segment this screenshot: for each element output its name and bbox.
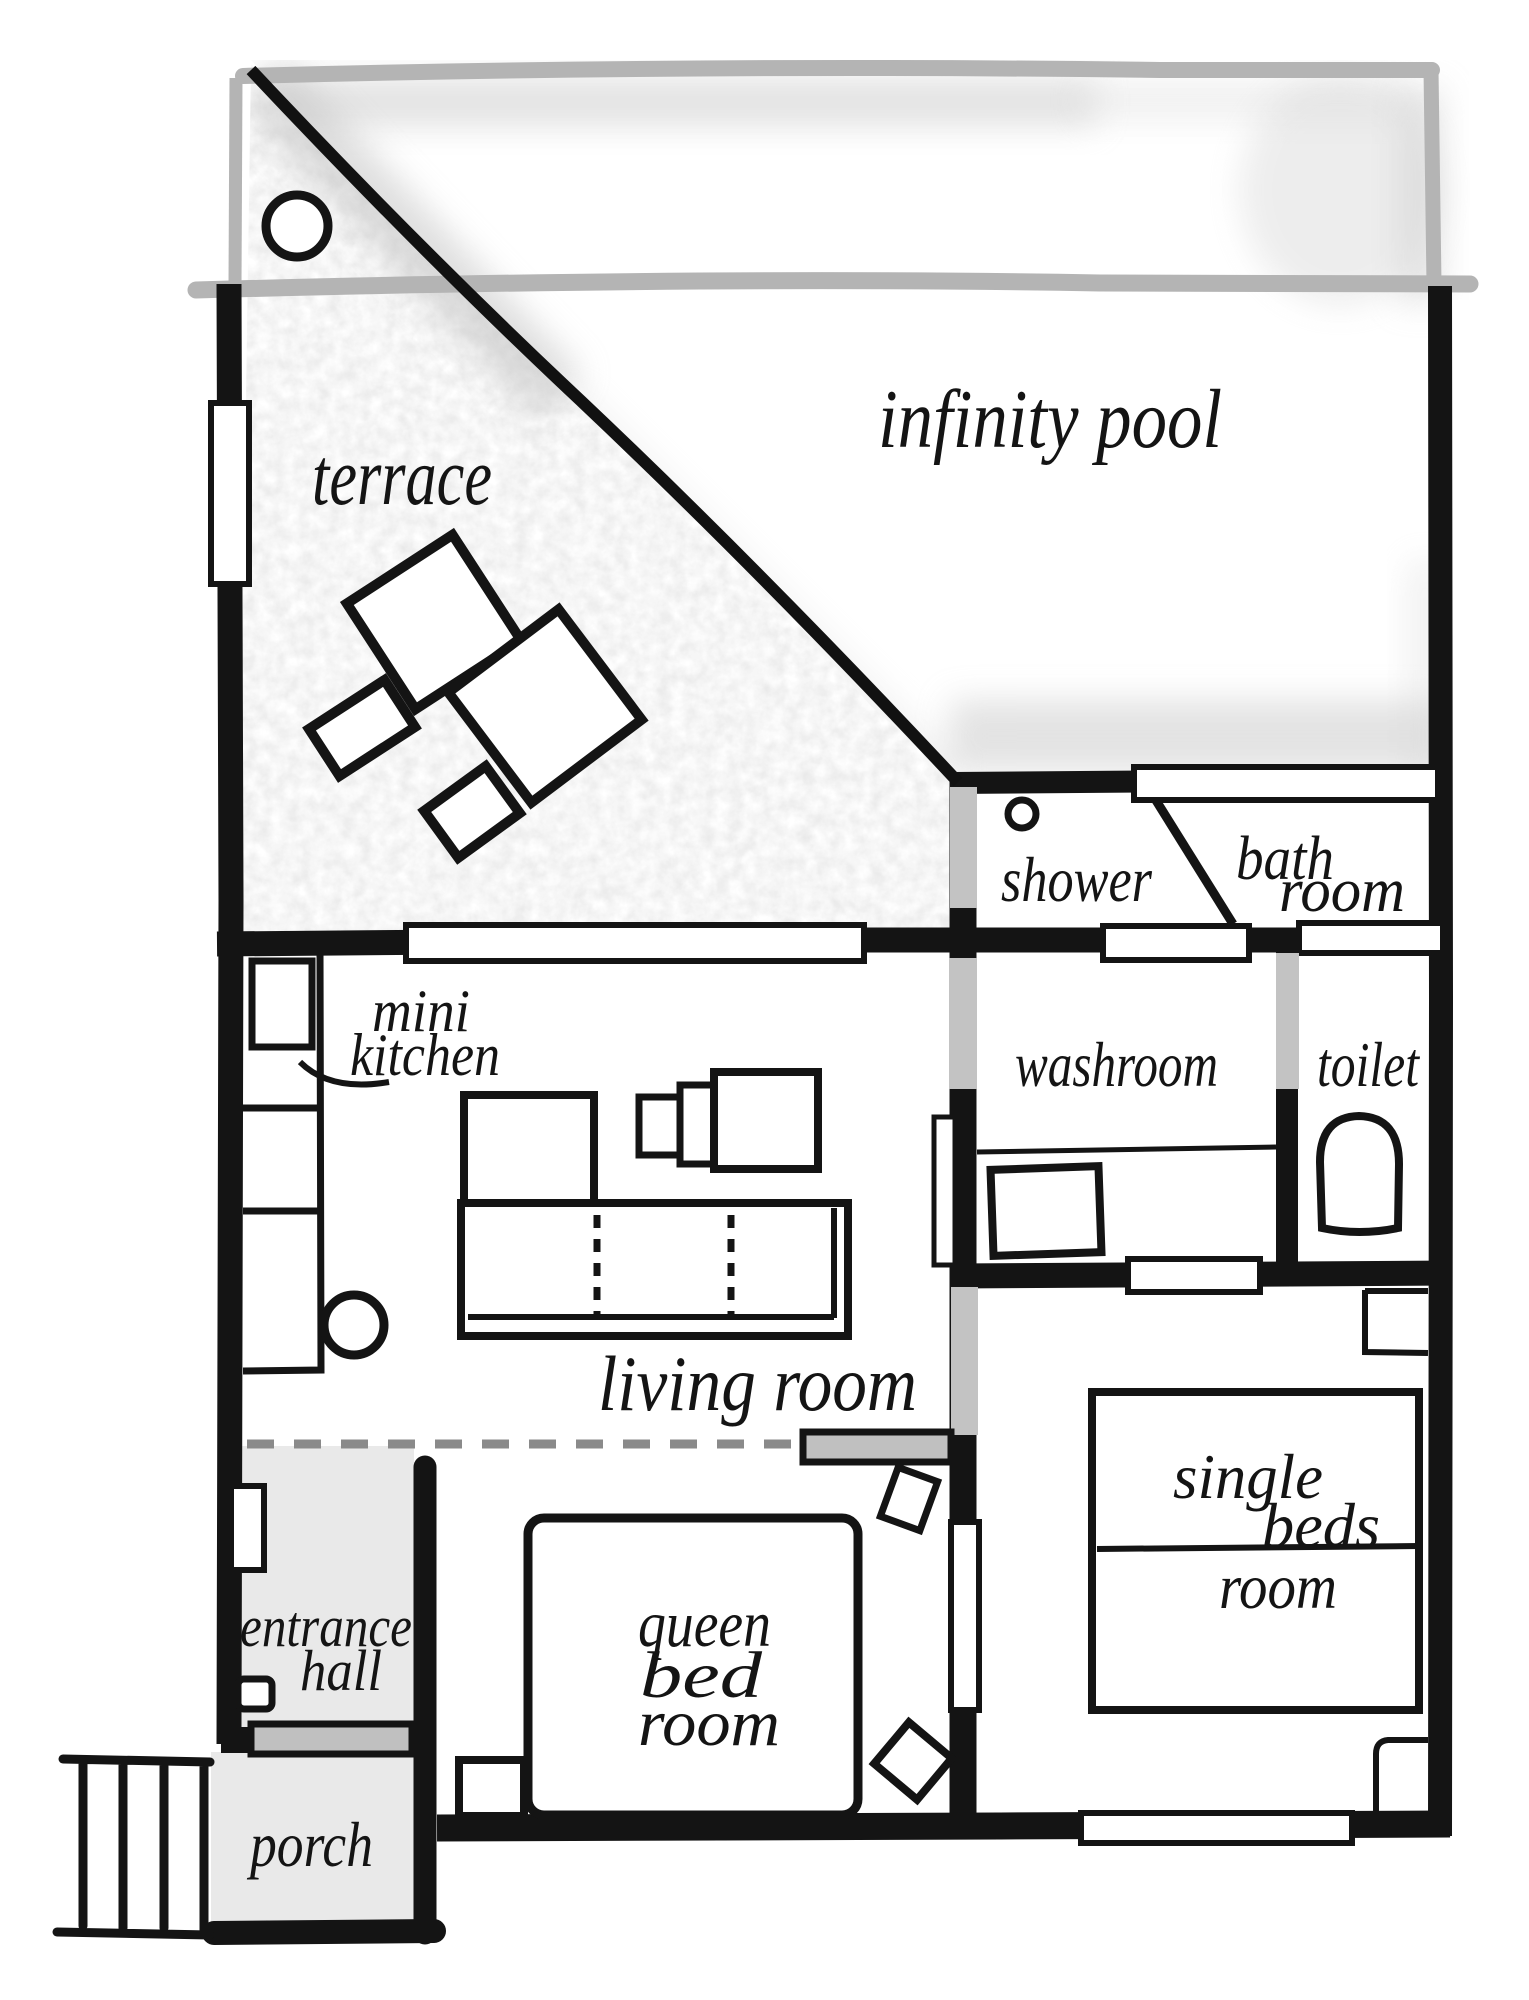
svg-text:room: room — [638, 1687, 780, 1760]
svg-text:kitchen: kitchen — [350, 1022, 500, 1088]
svg-text:shower: shower — [1001, 844, 1153, 915]
svg-text:washroom: washroom — [1015, 1029, 1218, 1100]
svg-text:terrace: terrace — [312, 431, 492, 522]
svg-text:room: room — [1219, 1551, 1337, 1622]
svg-text:room: room — [1279, 857, 1405, 925]
svg-text:hall: hall — [300, 1638, 382, 1703]
svg-text:toilet: toilet — [1317, 1029, 1421, 1100]
svg-text:infinity pool: infinity pool — [878, 373, 1222, 466]
svg-text:porch: porch — [247, 1809, 373, 1880]
svg-text:living room: living room — [598, 1340, 917, 1427]
